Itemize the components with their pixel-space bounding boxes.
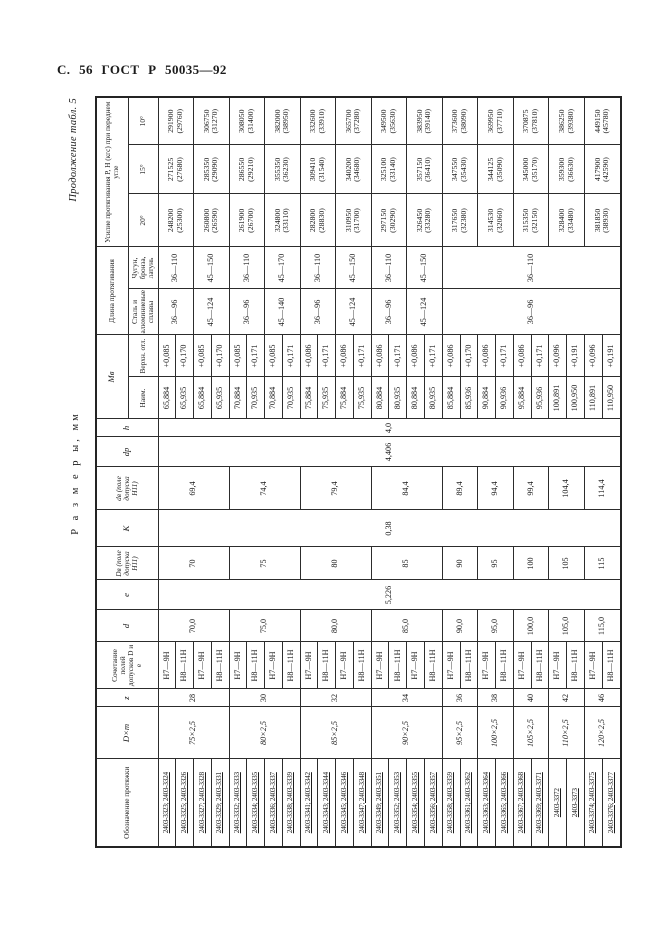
col-header-e: e <box>96 580 158 610</box>
force-20-cell: 326450(33280) <box>407 194 443 247</box>
K-shared-cell: 0,38 <box>158 510 621 547</box>
col-header-z: z <box>96 689 158 707</box>
col-header-force-10: 10° <box>128 97 158 145</box>
table-row: 2403-3341; 2403-334285×2,532Н7—9Н80,0807… <box>300 97 318 847</box>
force-kgs: (32380) <box>460 195 469 245</box>
col-header-K: K <box>96 510 158 547</box>
force-15-cell: 355350(36230) <box>265 145 301 194</box>
designation-cell: 2403-3363; 2403-3364 <box>478 759 496 847</box>
table-row: 2403-3358; 2403-335995×2,536Н7—9Н90,0908… <box>442 97 460 847</box>
force-20-cell: 260800(26590) <box>194 194 230 247</box>
length-iron-cell: 45—150 <box>336 247 372 289</box>
dxm-cell: 85×2,5 <box>300 707 371 759</box>
Mv-min-cell: 75,935 <box>353 377 371 419</box>
page-header: С. 56 ГОСТ Р 50035—92 <box>57 62 227 78</box>
designation-cell: 2403-3334; 2403-3335 <box>247 759 265 847</box>
designation-cell: 2403-3341; 2403-3342 <box>300 759 318 847</box>
force-15-cell: 347550(35430) <box>442 145 478 194</box>
designation-cell: 2403-3325; 2403-3326 <box>176 759 194 847</box>
rotated-table-block: Р а з м е р ы, мм Продолжение табл. 5 Об… <box>62 98 622 848</box>
Dv-cell: 105 <box>549 547 585 580</box>
force-20-cell: 261900(26700) <box>229 194 265 247</box>
force-kgs: (26590) <box>211 195 220 245</box>
force-kgs: (35090) <box>496 146 505 192</box>
tolerance-combo-cell: Н8—11Н <box>460 642 478 689</box>
designation-cell: 2403-3372 <box>549 759 567 847</box>
dv-cell: 94,4 <box>478 467 514 510</box>
force-10-cell: 449150(45780) <box>584 97 621 145</box>
designation-cell: 2403-3365; 2403-3366 <box>496 759 514 847</box>
force-kgs: (29760) <box>176 99 185 144</box>
d-cell: 85,0 <box>371 610 442 642</box>
Mv-dev-cell: +0,096 <box>584 335 602 377</box>
dv-cell: 69,4 <box>158 467 229 510</box>
d-cell: 80,0 <box>300 610 371 642</box>
z-cell: 28 <box>158 689 229 707</box>
length-steel-cell: 45—140 <box>265 289 301 335</box>
designation-cell: 2403-3329; 2403-3331 <box>211 759 229 847</box>
force-kgs: (31400) <box>247 99 256 144</box>
table-row: 2403-3363; 2403-3364100×2,538Н7—9Н95,095… <box>478 97 496 847</box>
tolerance-combo-cell: Н8—11Н <box>176 642 194 689</box>
Mv-min-cell: 70,884 <box>229 377 247 419</box>
force-kgs: (31540) <box>318 146 327 192</box>
Mv-min-cell: 95,884 <box>513 377 531 419</box>
tolerance-combo-cell: Н8—11Н <box>531 642 549 689</box>
length-steel-cell: 36—96 <box>300 289 336 335</box>
col-header-Mv-dev: Верхн. отл. <box>128 335 158 377</box>
tolerance-combo-cell: Н7—9Н <box>442 642 460 689</box>
Mv-dev-cell: +0,170 <box>211 335 229 377</box>
Mv-min-cell: 100,891 <box>549 377 567 419</box>
Mv-dev-cell: +0,086 <box>371 335 389 377</box>
dv-cell: 79,4 <box>300 467 371 510</box>
Mv-dev-cell: +0,171 <box>496 335 514 377</box>
force-kgs: (31270) <box>211 99 220 144</box>
Mv-min-cell: 90,884 <box>478 377 496 419</box>
dv-cell: 104,4 <box>549 467 585 510</box>
table-body: 2403-3323; 2403-332475×2,528Н7—9Н70,05,2… <box>158 97 621 847</box>
force-kgs: (29090) <box>211 146 220 192</box>
force-kgs: (28830) <box>318 195 327 245</box>
designation-cell: 2403-3356; 2403-3357 <box>424 759 442 847</box>
tolerance-combo-cell: Н7—9Н <box>371 642 389 689</box>
h-shared-cell: 4,0 <box>158 419 621 437</box>
force-kgs: (32150) <box>531 195 540 245</box>
dxm-cell: 120×2,5 <box>584 707 621 759</box>
Mv-min-cell: 110,891 <box>584 377 602 419</box>
dxm-cell: 80×2,5 <box>229 707 300 759</box>
force-kgs: (33480) <box>567 195 576 245</box>
force-kgs: (25300) <box>176 195 185 245</box>
Dv-cell: 100 <box>513 547 549 580</box>
Mv-dev-cell: +0,170 <box>460 335 478 377</box>
force-kgs: (31700) <box>353 195 362 245</box>
Mv-dev-cell: +0,086 <box>478 335 496 377</box>
length-steel-cell: 36—96 <box>442 289 621 335</box>
force-kgs: (37710) <box>496 99 505 144</box>
Mv-dev-cell: +0,171 <box>247 335 265 377</box>
col-header-Mv: Мв <box>96 335 128 419</box>
length-iron-cell: 36—110 <box>442 247 621 289</box>
force-kgs: (35170) <box>531 146 540 192</box>
table-row: 2403-3367; 2403-3368105×2,540Н7—9Н100,01… <box>513 97 531 847</box>
tolerance-combo-cell: Н8—11Н <box>389 642 407 689</box>
col-header-length: Длина протягивания <box>96 247 128 335</box>
col-header-length-steel: Сталь и алюминиевые сплавы <box>128 289 158 335</box>
d-cell: 100,0 <box>513 610 549 642</box>
Mv-min-cell: 80,884 <box>407 377 425 419</box>
designation-cell: 2403-3369; 2403-3371 <box>531 759 549 847</box>
Dv-cell: 75 <box>229 547 300 580</box>
force-10-cell: 308050(31400) <box>229 97 265 145</box>
tolerance-combo-cell: Н8—11Н <box>424 642 442 689</box>
force-10-cell: 382000(38950) <box>265 97 301 145</box>
tolerance-combo-cell: Н7—9Н <box>229 642 247 689</box>
table-row: 2403-3332; 2403-333380×2,530Н7—9Н75,0757… <box>229 97 247 847</box>
force-15-cell: 286550(29210) <box>229 145 265 194</box>
force-10-cell: 291900(29760) <box>158 97 194 145</box>
tolerance-combo-cell: Н7—9Н <box>336 642 354 689</box>
force-20-cell: 314530(32060) <box>478 194 514 247</box>
force-kgs: (36410) <box>424 146 433 192</box>
Mv-dev-cell: +0,171 <box>389 335 407 377</box>
length-steel-cell: 36—96 <box>371 289 407 335</box>
col-header-force: Усилие протягивания Р, Н (кгс) при перед… <box>96 97 128 247</box>
d-cell: 70,0 <box>158 610 229 642</box>
Mv-min-cell: 65,884 <box>158 377 176 419</box>
force-kgs: (34680) <box>353 146 362 192</box>
Mv-dev-cell: +0,170 <box>176 335 194 377</box>
Dv-cell: 85 <box>371 547 442 580</box>
designation-cell: 2403-3347; 2403-3348 <box>353 759 371 847</box>
force-10-cell: 365700(37280) <box>336 97 372 145</box>
d-cell: 75,0 <box>229 610 300 642</box>
designation-cell: 2403-3327; 2403-3328 <box>194 759 212 847</box>
Mv-min-cell: 80,884 <box>371 377 389 419</box>
force-15-cell: 417900(42590) <box>584 145 621 194</box>
force-kgs: (30290) <box>389 195 398 245</box>
Mv-dev-cell: +0,171 <box>353 335 371 377</box>
Mv-dev-cell: +0,171 <box>282 335 300 377</box>
force-kgs: (38930) <box>602 195 611 245</box>
Mv-min-cell: 65,884 <box>194 377 212 419</box>
tolerance-combo-cell: Н8—11Н <box>211 642 229 689</box>
Mv-min-cell: 80,935 <box>389 377 407 419</box>
designation-cell: 2403-3367; 2403-3368 <box>513 759 531 847</box>
force-20-cell: 297150(30290) <box>371 194 407 247</box>
designation-cell: 2403-3361; 2403-3362 <box>460 759 478 847</box>
dv-cell: 114,4 <box>584 467 621 510</box>
z-cell: 34 <box>371 689 442 707</box>
col-header-length-iron: Чугун, бронза, латунь <box>128 247 158 289</box>
designation-cell: 2403-3358; 2403-3359 <box>442 759 460 847</box>
tolerance-combo-cell: Н8—11Н <box>496 642 514 689</box>
force-kgs: (36230) <box>282 146 291 192</box>
tolerance-combo-cell: Н7—9Н <box>158 642 176 689</box>
Mv-dev-cell: +0,191 <box>567 335 585 377</box>
z-cell: 36 <box>442 689 478 707</box>
force-15-cell: 271525(27680) <box>158 145 194 194</box>
tolerance-combo-cell: Н8—11Н <box>353 642 371 689</box>
col-header-Dv: Dв (поле допуска Н11) <box>96 547 158 580</box>
force-kgs: (38950) <box>282 99 291 144</box>
z-cell: 30 <box>229 689 300 707</box>
designation-cell: 2403-3354; 2403-3355 <box>407 759 425 847</box>
col-header-force-20: 20° <box>128 194 158 247</box>
dv-cell: 89,4 <box>442 467 478 510</box>
Mv-min-cell: 75,884 <box>336 377 354 419</box>
length-steel-cell: 45—124 <box>407 289 443 335</box>
dxm-cell: 110×2,5 <box>549 707 585 759</box>
force-15-cell: 357150(36410) <box>407 145 443 194</box>
tolerance-combo-cell: Н7—9Н <box>265 642 283 689</box>
force-kgs: (36630) <box>567 146 576 192</box>
z-cell: 32 <box>300 689 371 707</box>
force-15-cell: 309410(31540) <box>300 145 336 194</box>
designation-cell: 2403-3323; 2403-3324 <box>158 759 176 847</box>
Mv-dev-cell: +0,086 <box>513 335 531 377</box>
length-iron-cell: 36—110 <box>229 247 265 289</box>
force-kgs: (39140) <box>424 99 433 144</box>
dv-cell: 99,4 <box>513 467 549 510</box>
force-20-cell: 328400(33480) <box>549 194 585 247</box>
Mv-min-cell: 75,935 <box>318 377 336 419</box>
Dv-cell: 90 <box>442 547 478 580</box>
d-cell: 115,0 <box>584 610 621 642</box>
force-10-cell: 386250(39380) <box>549 97 585 145</box>
continuation-note: Продолжение табл. 5 <box>68 98 79 202</box>
force-15-cell: 359300(36630) <box>549 145 585 194</box>
length-iron-cell: 45—150 <box>407 247 443 289</box>
tolerance-combo-cell: Н8—11Н <box>602 642 621 689</box>
Mv-dev-cell: +0,086 <box>407 335 425 377</box>
z-cell: 40 <box>513 689 549 707</box>
force-kgs: (33910) <box>318 99 327 144</box>
force-20-cell: 282800(28830) <box>300 194 336 247</box>
gost-broach-table: Обозначение протяжки D×m z Сочетание пол… <box>95 96 622 848</box>
force-kgs: (29210) <box>247 146 256 192</box>
table-row: 2403-3372110×2,542Н7—9Н105,0105104,4100,… <box>549 97 567 847</box>
force-kgs: (42590) <box>602 146 611 192</box>
Mv-dev-cell: +0,171 <box>424 335 442 377</box>
force-15-cell: 345000(35170) <box>513 145 549 194</box>
force-kgs: (37280) <box>353 99 362 144</box>
length-iron-cell: 45—170 <box>265 247 301 289</box>
tolerance-combo-cell: Н7—9Н <box>478 642 496 689</box>
dv-cell: 84,4 <box>371 467 442 510</box>
designation-cell: 2403-3352; 2403-3353 <box>389 759 407 847</box>
d-cell: 105,0 <box>549 610 585 642</box>
z-cell: 46 <box>584 689 621 707</box>
d-cell: 95,0 <box>478 610 514 642</box>
dxm-cell: 95×2,5 <box>442 707 478 759</box>
e-shared-cell: 5,226 <box>158 580 621 610</box>
col-header-d: d <box>96 610 158 642</box>
force-10-cell: 383950(39140) <box>407 97 443 145</box>
force-kgs: (45780) <box>602 99 611 144</box>
table-header: Обозначение протяжки D×m z Сочетание пол… <box>96 97 158 847</box>
force-kgs: (37810) <box>531 99 540 144</box>
force-20-cell: 310950(31700) <box>336 194 372 247</box>
Mv-dev-cell: +0,086 <box>300 335 318 377</box>
designation-cell: 2403-3349; 2403-3351 <box>371 759 389 847</box>
force-15-cell: 285350(29090) <box>194 145 230 194</box>
Mv-min-cell: 65,935 <box>176 377 194 419</box>
force-kgs: (26700) <box>247 195 256 245</box>
tolerance-combo-cell: Н7—9Н <box>194 642 212 689</box>
force-kgs: (33140) <box>389 146 398 192</box>
dxm-cell: 105×2,5 <box>513 707 549 759</box>
force-20-cell: 315350(32150) <box>513 194 549 247</box>
Mv-min-cell: 65,935 <box>211 377 229 419</box>
Mv-dev-cell: +0,085 <box>229 335 247 377</box>
Mv-min-cell: 70,935 <box>282 377 300 419</box>
tolerance-combo-cell: Н8—11Н <box>282 642 300 689</box>
dxm-cell: 90×2,5 <box>371 707 442 759</box>
dxm-cell: 100×2,5 <box>478 707 514 759</box>
force-kgs: (38090) <box>460 99 469 144</box>
col-header-dv: dв (поле допуска Н11) <box>96 467 158 510</box>
col-header-force-15: 15° <box>128 145 158 194</box>
Mv-min-cell: 85,884 <box>442 377 460 419</box>
force-kgs: (33280) <box>424 195 433 245</box>
force-kgs: (35430) <box>460 146 469 192</box>
dv-cell: 74,4 <box>229 467 300 510</box>
force-kgs: (32060) <box>496 195 505 245</box>
tolerance-combo-cell: Н8—11Н <box>567 642 585 689</box>
length-steel-cell: 45—124 <box>194 289 230 335</box>
force-10-cell: 306750(31270) <box>194 97 230 145</box>
tolerance-combo-cell: Н7—9Н <box>549 642 567 689</box>
designation-cell: 2403-3343; 2403-3344 <box>318 759 336 847</box>
length-iron-cell: 45—150 <box>194 247 230 289</box>
col-header-designation: Обозначение протяжки <box>96 759 158 847</box>
force-10-cell: 349500(35630) <box>371 97 407 145</box>
force-20-cell: 248200(25300) <box>158 194 194 247</box>
force-kgs: (35630) <box>389 99 398 144</box>
z-cell: 38 <box>478 689 514 707</box>
Mv-dev-cell: +0,086 <box>336 335 354 377</box>
dp-shared-cell: 4,406 <box>158 437 621 467</box>
Mv-min-cell: 75,884 <box>300 377 318 419</box>
length-iron-cell: 36—110 <box>300 247 336 289</box>
Mv-min-cell: 110,950 <box>602 377 621 419</box>
dxm-cell: 75×2,5 <box>158 707 229 759</box>
force-kgs: (27680) <box>176 146 185 192</box>
Dv-cell: 70 <box>158 547 229 580</box>
col-header-tolerance-combo: Сочетание полей допусков D и е <box>96 642 158 689</box>
length-steel-cell: 45—124 <box>336 289 372 335</box>
table-row: 2403-3349; 2403-335190×2,534Н7—9Н85,0858… <box>371 97 389 847</box>
designation-cell: 2403-3376; 2403-3377 <box>602 759 621 847</box>
designation-cell: 2403-3374; 2403-3375 <box>584 759 602 847</box>
force-15-cell: 344125(35090) <box>478 145 514 194</box>
length-steel-cell: 36—96 <box>229 289 265 335</box>
Mv-min-cell: 85,936 <box>460 377 478 419</box>
designation-cell: 2403-3338; 2403-3339 <box>282 759 300 847</box>
Mv-min-cell: 70,884 <box>265 377 283 419</box>
tolerance-combo-cell: Н7—9Н <box>407 642 425 689</box>
size-note: Р а з м е р ы, мм <box>70 98 81 848</box>
force-15-cell: 325100(33140) <box>371 145 407 194</box>
Mv-dev-cell: +0,096 <box>549 335 567 377</box>
Mv-dev-cell: +0,085 <box>194 335 212 377</box>
col-header-dp: dр <box>96 437 158 467</box>
table-row: 2403-3374; 2403-3375120×2,546Н7—9Н115,01… <box>584 97 602 847</box>
force-10-cell: 332600(33910) <box>300 97 336 145</box>
tolerance-combo-cell: Н7—9Н <box>300 642 318 689</box>
Dv-cell: 95 <box>478 547 514 580</box>
force-20-cell: 317650(32380) <box>442 194 478 247</box>
Mv-min-cell: 70,935 <box>247 377 265 419</box>
Mv-dev-cell: +0,191 <box>602 335 621 377</box>
designation-cell: 2403-3332; 2403-3333 <box>229 759 247 847</box>
scanned-gost-page: { "page": { "header_left": "С. 56 ГОСТ Р… <box>0 0 661 935</box>
table-captions: Р а з м е р ы, мм Продолжение табл. 5 <box>62 98 92 848</box>
force-20-cell: 324800(33110) <box>265 194 301 247</box>
designation-cell: 2403-3373 <box>567 759 585 847</box>
tolerance-combo-cell: Н8—11Н <box>318 642 336 689</box>
force-15-cell: 340200(34680) <box>336 145 372 194</box>
z-cell: 42 <box>549 689 585 707</box>
col-header-dxm: D×m <box>96 707 158 759</box>
tolerance-combo-cell: Н8—11Н <box>247 642 265 689</box>
force-10-cell: 369950(37710) <box>478 97 514 145</box>
force-10-cell: 370875(37810) <box>513 97 549 145</box>
force-10-cell: 373600(38090) <box>442 97 478 145</box>
Dv-cell: 80 <box>300 547 371 580</box>
Mv-min-cell: 80,935 <box>424 377 442 419</box>
designation-cell: 2403-3345; 2403-3346 <box>336 759 354 847</box>
Mv-dev-cell: +0,085 <box>265 335 283 377</box>
col-header-h: h <box>96 419 158 437</box>
d-cell: 90,0 <box>442 610 478 642</box>
Mv-dev-cell: +0,085 <box>158 335 176 377</box>
tolerance-combo-cell: Н7—9Н <box>513 642 531 689</box>
force-kgs: (33110) <box>282 195 291 245</box>
Mv-dev-cell: +0,086 <box>442 335 460 377</box>
force-20-cell: 381850(38930) <box>584 194 621 247</box>
length-iron-cell: 36—110 <box>158 247 194 289</box>
Dv-cell: 115 <box>584 547 621 580</box>
Mv-dev-cell: +0,171 <box>531 335 549 377</box>
Mv-min-cell: 90,936 <box>496 377 514 419</box>
Mv-min-cell: 100,950 <box>567 377 585 419</box>
designation-cell: 2403-3336; 2403-3337 <box>265 759 283 847</box>
tolerance-combo-cell: Н7—9Н <box>584 642 602 689</box>
Mv-dev-cell: +0,171 <box>318 335 336 377</box>
length-steel-cell: 36—96 <box>158 289 194 335</box>
table-row: 2403-3323; 2403-332475×2,528Н7—9Н70,05,2… <box>158 97 176 847</box>
Mv-min-cell: 95,936 <box>531 377 549 419</box>
col-header-Mv-min: Наим. <box>128 377 158 419</box>
force-kgs: (39380) <box>567 99 576 144</box>
length-iron-cell: 36—110 <box>371 247 407 289</box>
